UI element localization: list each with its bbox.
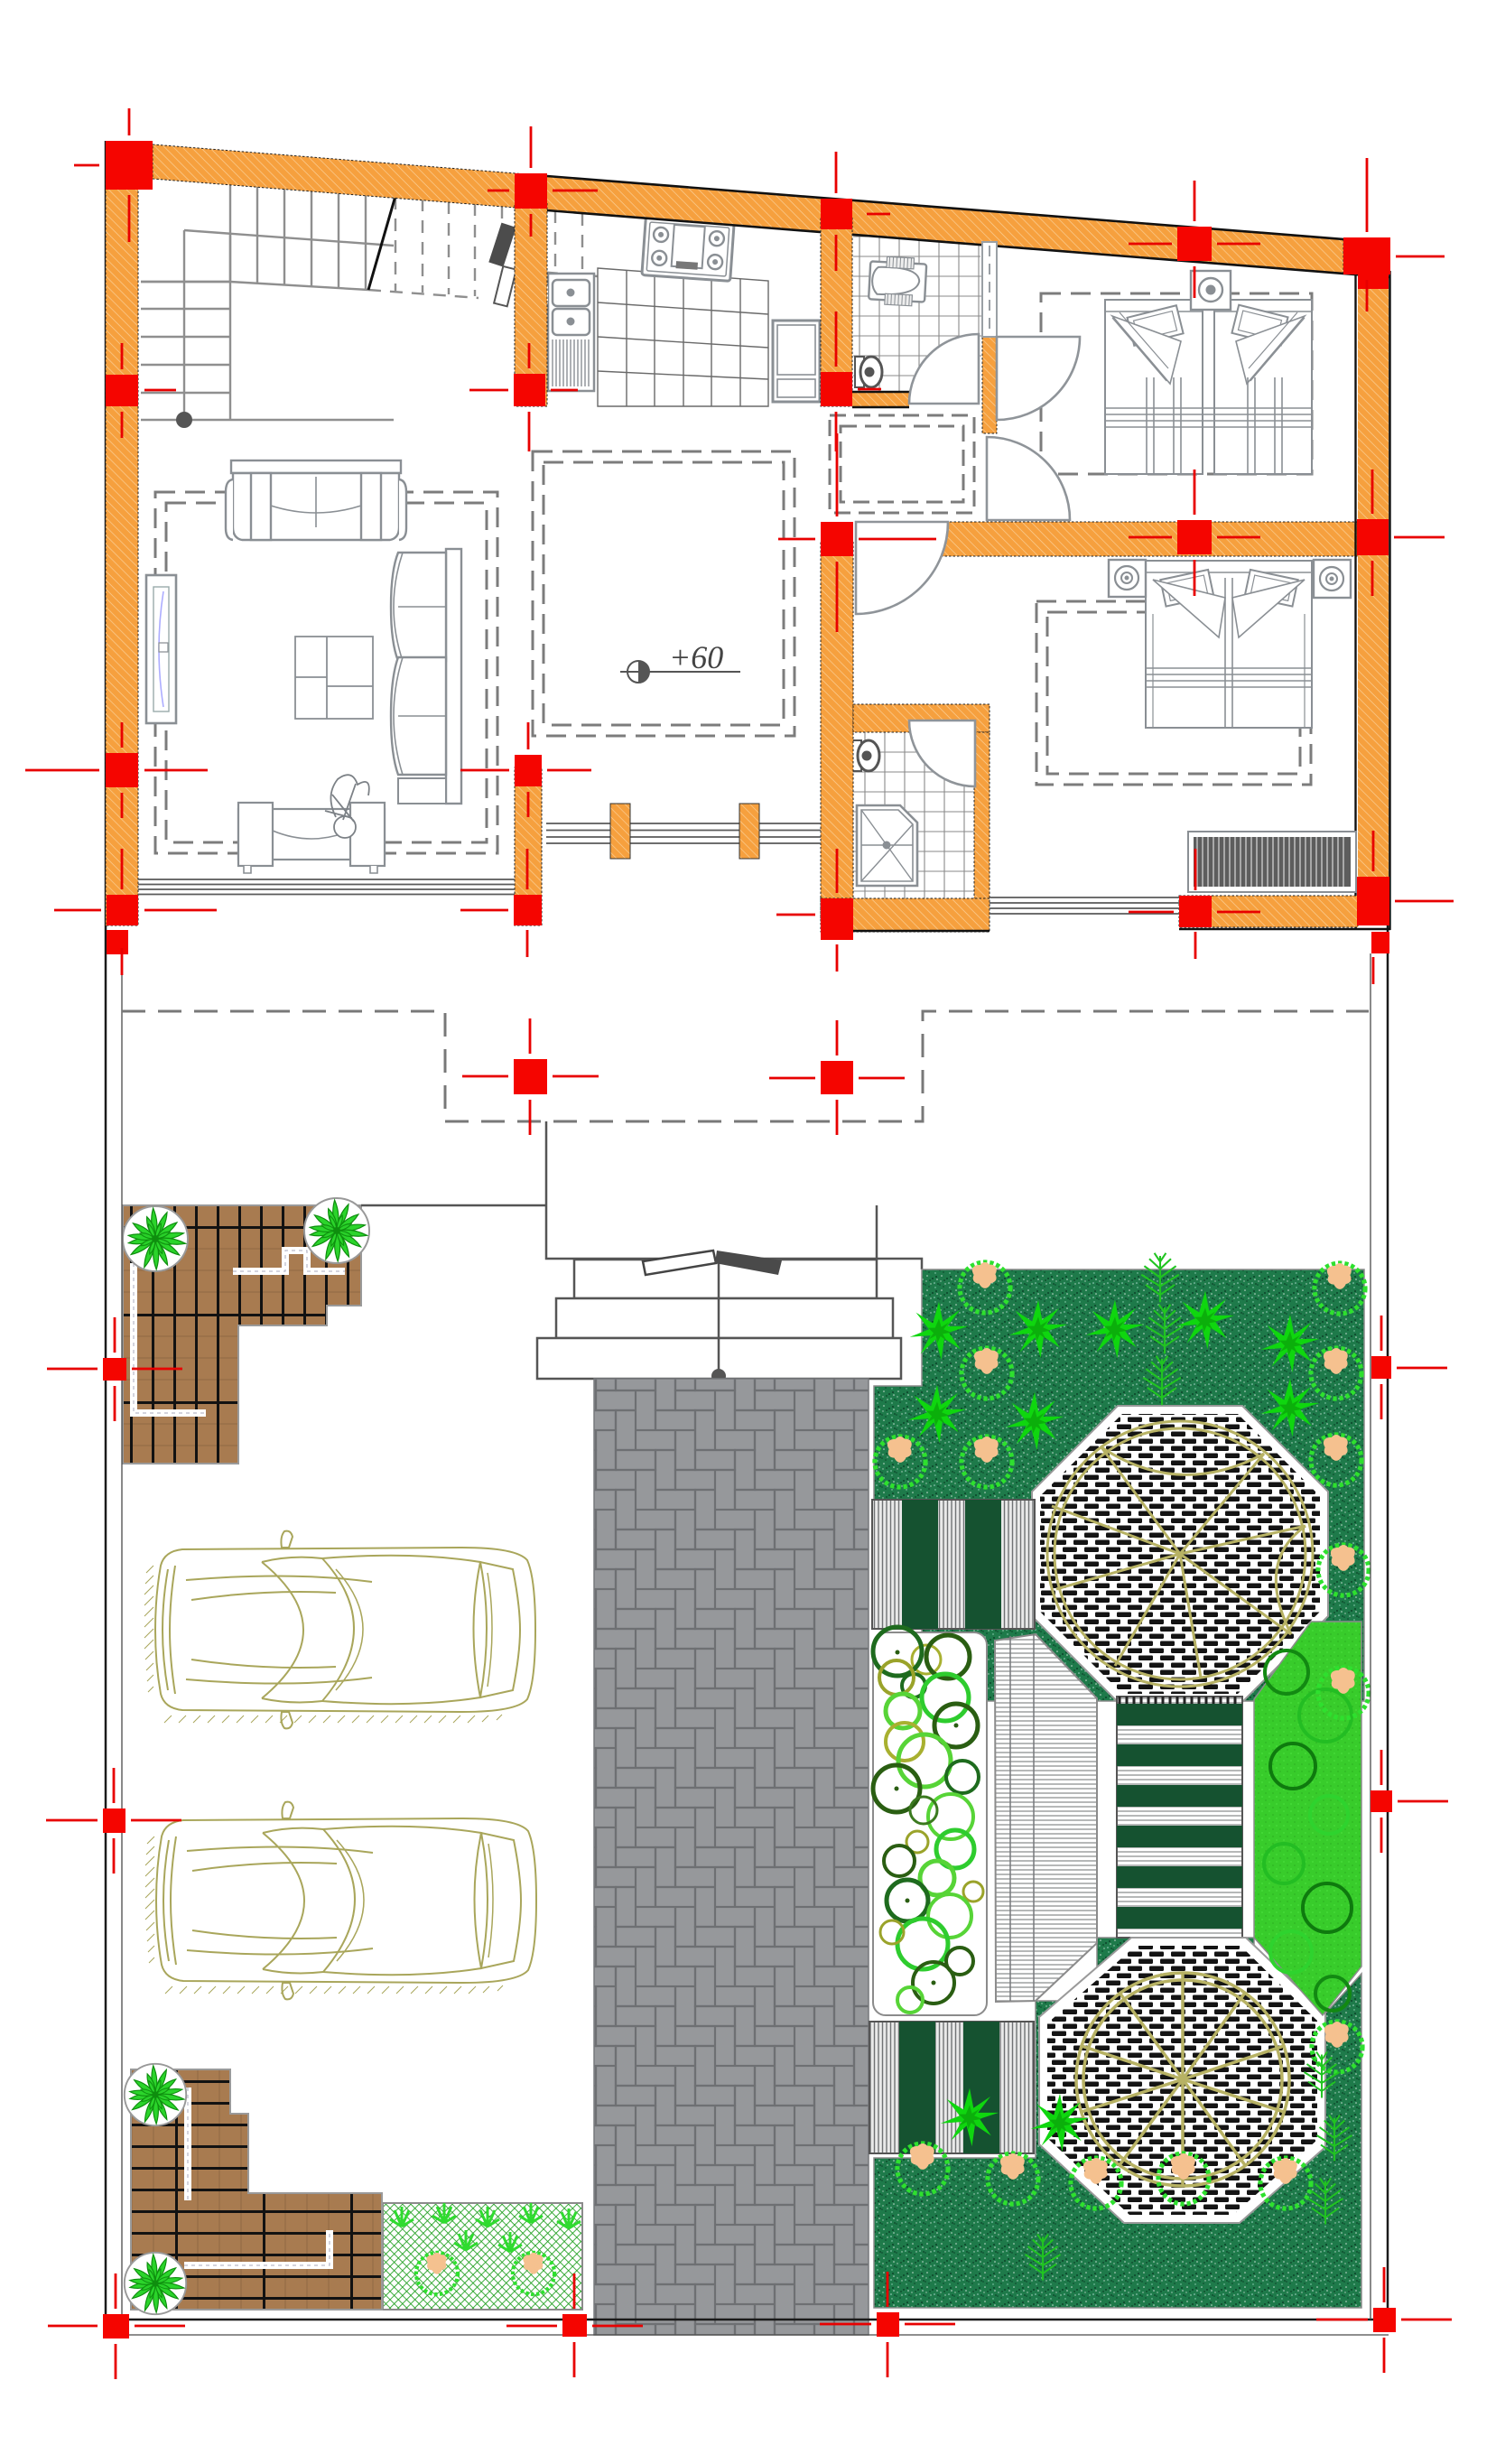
svg-text:+60: +60 xyxy=(669,639,723,675)
